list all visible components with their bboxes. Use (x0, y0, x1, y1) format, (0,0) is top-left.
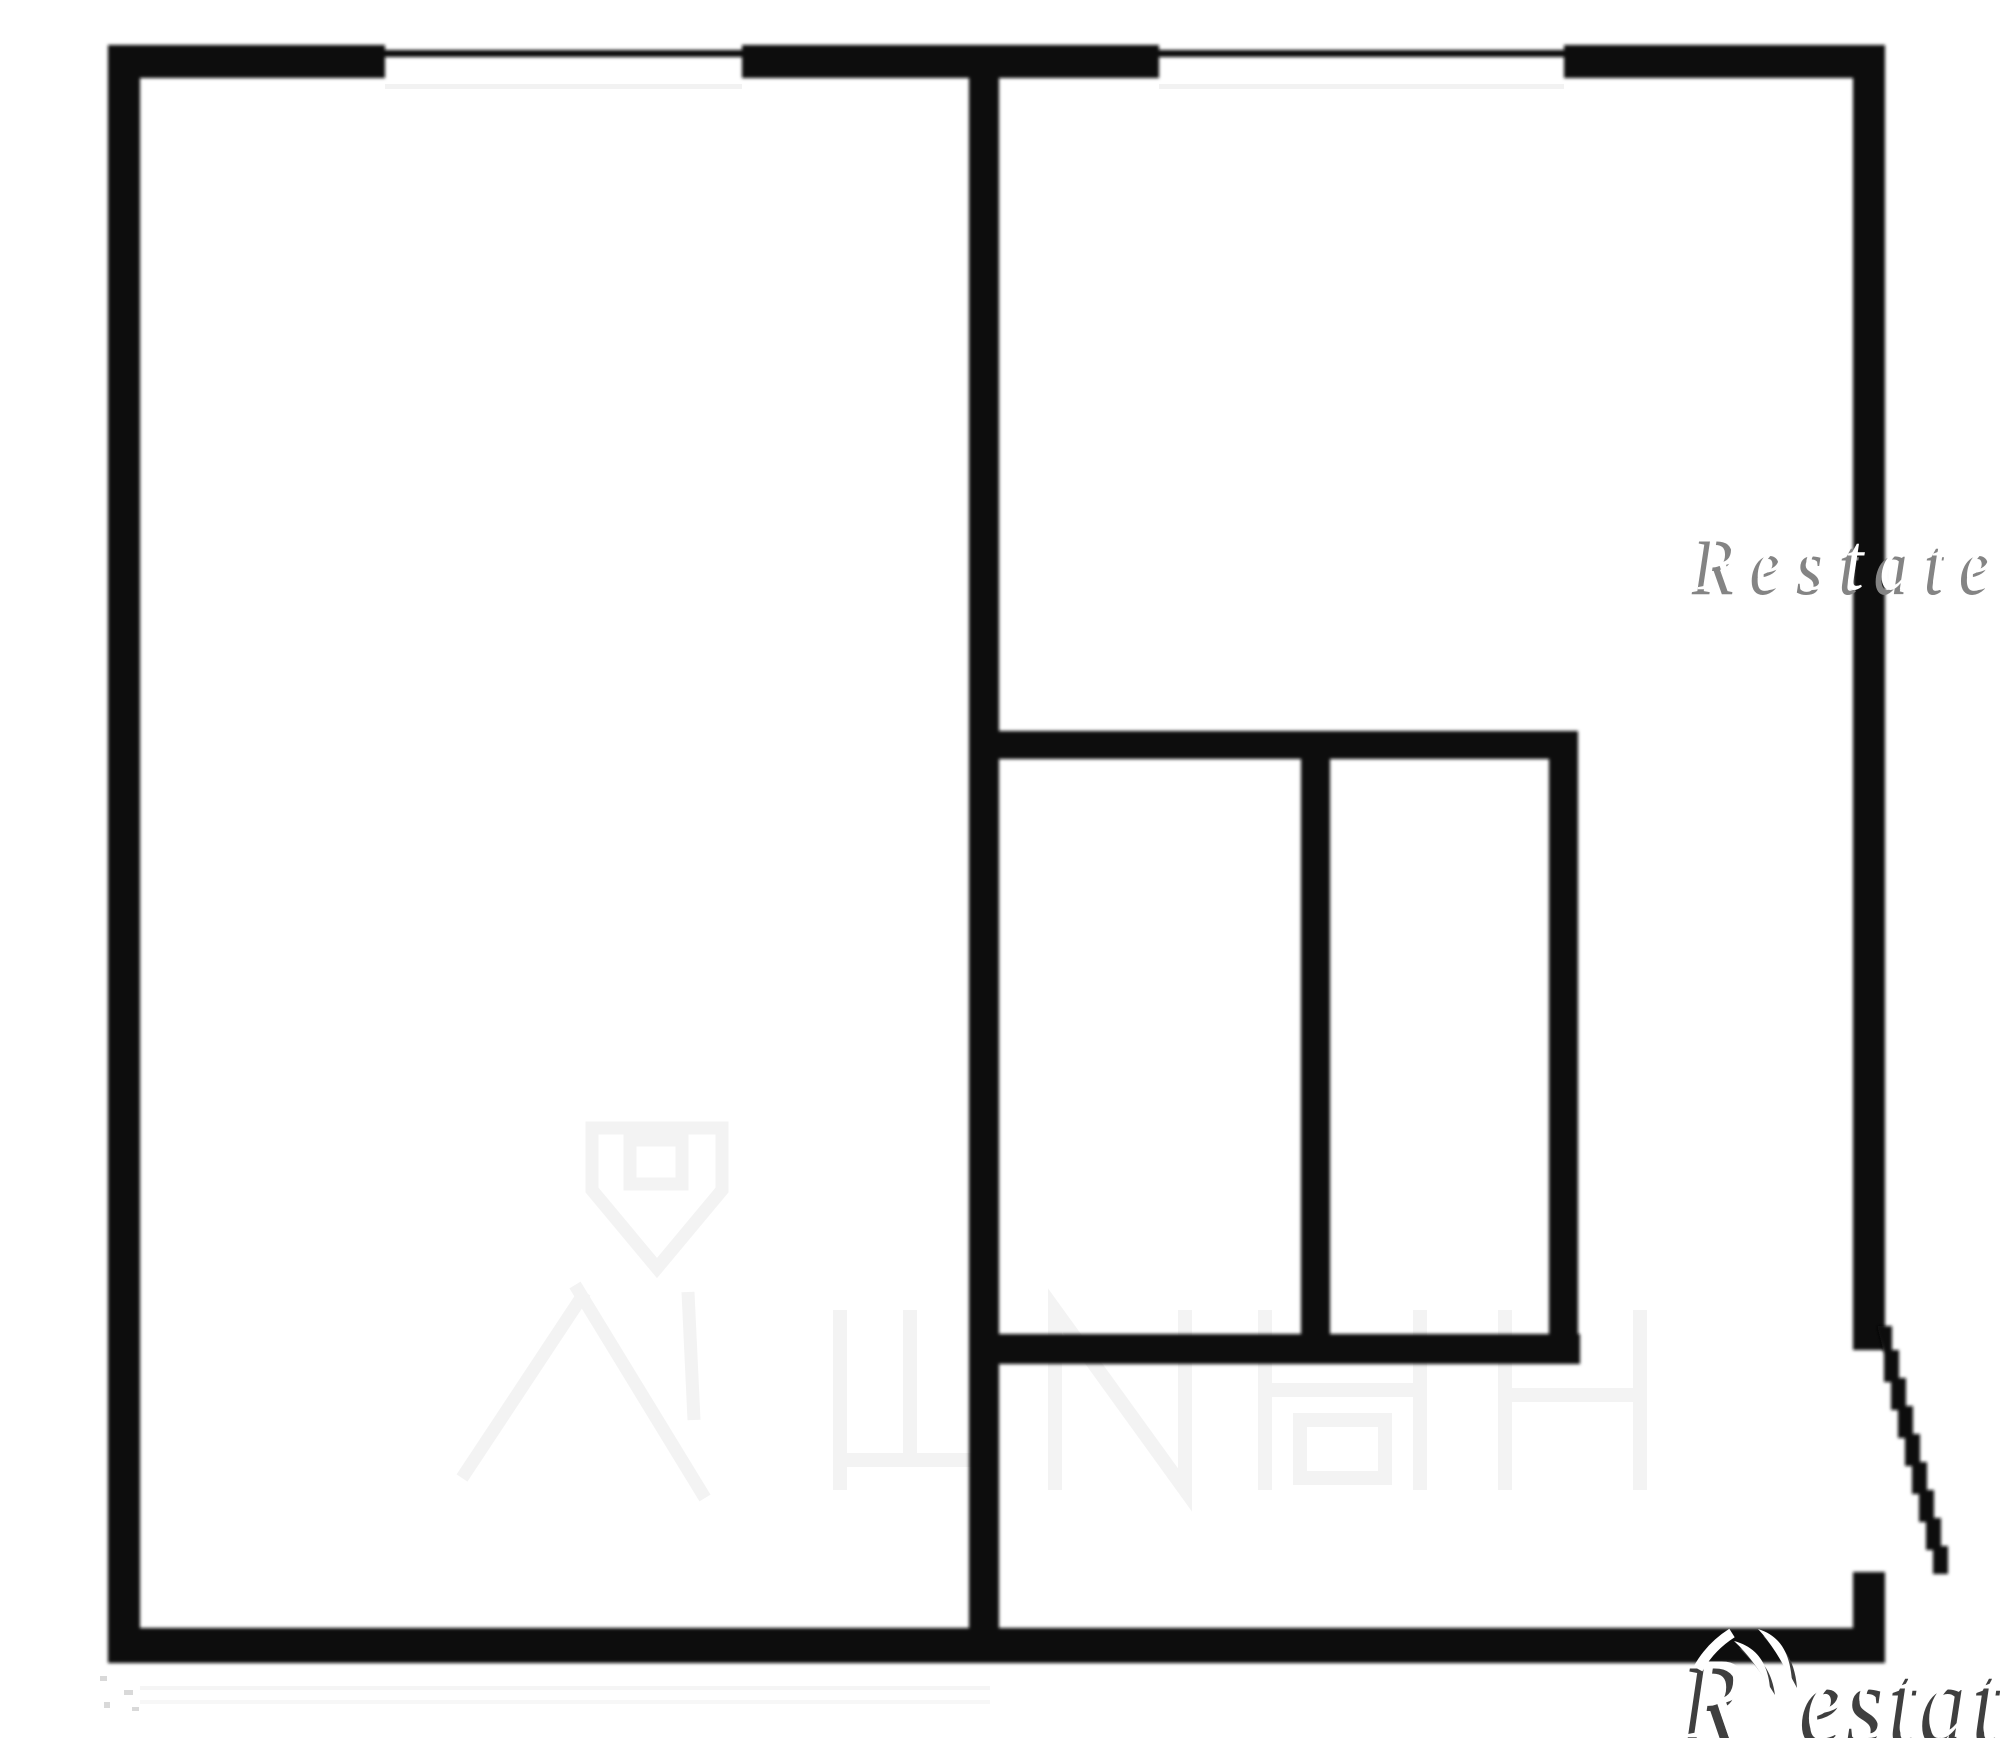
svg-text:estate: estate (1806, 1633, 2000, 1738)
svg-text:Restate: Restate (1697, 519, 2000, 607)
